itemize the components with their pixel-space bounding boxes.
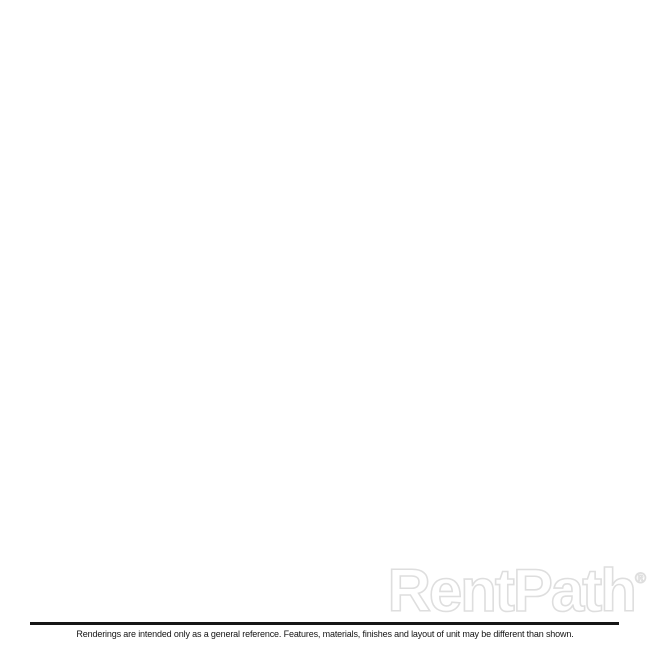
watermark-text: RentPath (388, 557, 635, 624)
rentpath-watermark: RentPath® (388, 561, 646, 621)
floorplan-3d-render (0, 0, 650, 650)
registered-mark: ® (635, 570, 646, 587)
disclaimer-text: Renderings are intended only as a genera… (0, 629, 650, 639)
floorplan-page: RentPath® Renderings are intended only a… (0, 0, 650, 650)
